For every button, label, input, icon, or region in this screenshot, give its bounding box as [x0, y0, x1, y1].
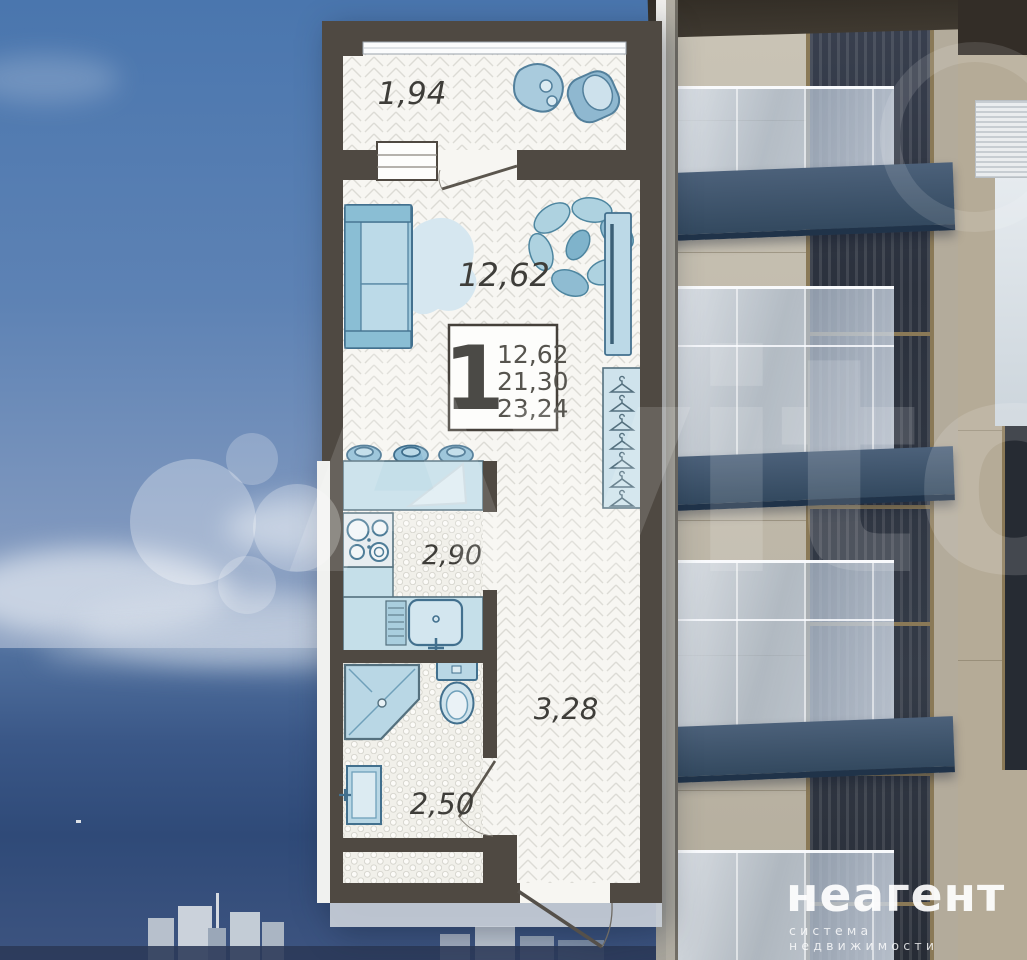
kitchen-sink-icon [386, 600, 462, 652]
hallway-area-label: 3,28 [534, 692, 599, 726]
balcony-chair-icon [514, 64, 563, 112]
stove-icon [343, 513, 393, 567]
legend-box: 1 12,62 21,30 23,24 [443, 325, 568, 430]
agency-logo: неагент система недвижимости [786, 872, 1027, 953]
living-area-label: 12,62 [458, 256, 550, 294]
listing-photo: 1 12,62 21,30 23,24 1,94 12,62 2,90 2,50… [0, 0, 1027, 960]
entry-floor [343, 852, 483, 883]
floor-plan: 1 12,62 21,30 23,24 1,94 12,62 2,90 2,50… [0, 0, 1027, 960]
balcony-area-label: 1,94 [377, 76, 446, 112]
sofa-icon [345, 205, 412, 348]
bathroom-sink-icon [347, 766, 381, 824]
rooms-count: 1 [443, 327, 504, 430]
legend-total-area: 21,30 [497, 367, 569, 396]
agency-logo-tagline: система недвижимости [786, 923, 1027, 953]
tv-icon [605, 213, 631, 355]
bathroom-area-label: 2,50 [410, 787, 475, 821]
agency-logo-name: неагент [786, 872, 1027, 919]
wardrobe-icon [603, 368, 641, 508]
legend-living-area: 12,62 [497, 340, 569, 369]
kitchen-area-label: 2,90 [422, 540, 482, 571]
toilet-icon [437, 661, 477, 724]
legend-overall-area: 23,24 [497, 394, 569, 423]
balcony-window [377, 142, 437, 180]
